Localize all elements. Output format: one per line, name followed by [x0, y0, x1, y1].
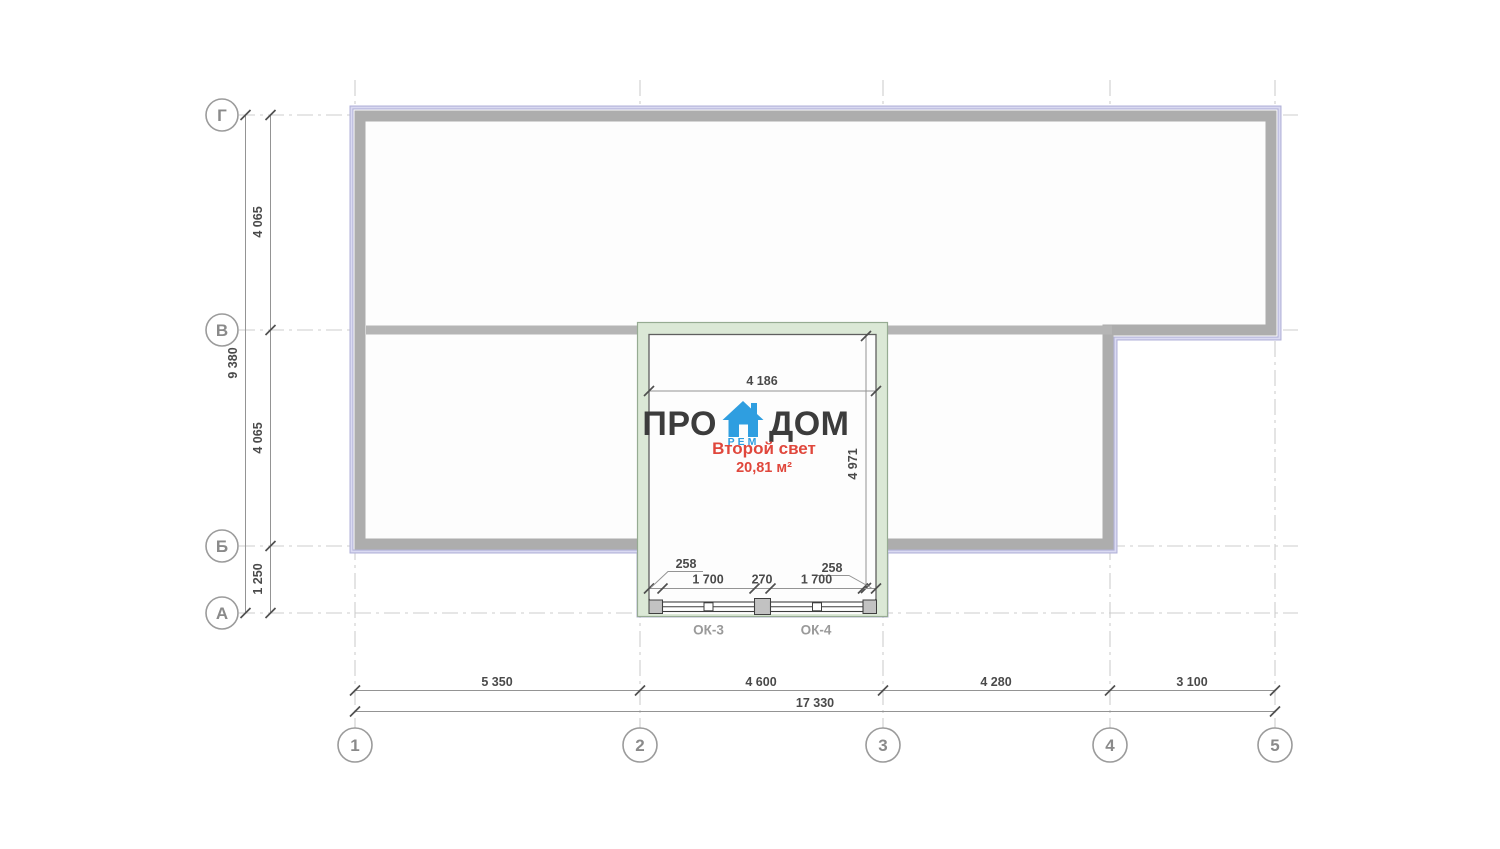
svg-text:1: 1: [350, 736, 359, 755]
dim-bottom-1: 4 600: [745, 675, 776, 689]
logo-word-pro: ПРО: [642, 405, 717, 443]
bottom-dimensions: 5 350 4 600 4 280 3 100 17 330: [350, 675, 1280, 717]
dim-left-total: 9 380: [226, 347, 240, 378]
dim-bottom-0: 5 350: [481, 675, 512, 689]
grid-bubble-col-1: 1: [338, 728, 372, 762]
room-area-label: 20,81 м²: [736, 460, 792, 476]
dim-bottom-2: 4 280: [980, 675, 1011, 689]
dim-bottom-total: 17 330: [796, 696, 834, 710]
grid-bubble-col-2: 2: [623, 728, 657, 762]
logo-word-dom: ДОМ: [769, 405, 850, 443]
grid-bubble-col-3: 3: [866, 728, 900, 762]
dim-window-2: 1 700: [801, 573, 832, 587]
grid-bubbles-cols: 1 2 3 4 5: [338, 728, 1292, 762]
grid-bubble-row-a: А: [206, 597, 238, 629]
svg-text:5: 5: [1270, 736, 1279, 755]
svg-text:2: 2: [635, 736, 644, 755]
window-label-ok3: ОК-3: [693, 623, 724, 638]
window-ok3-glyph: [663, 602, 755, 612]
window-jamb-left: [649, 600, 663, 614]
dim-room-height: 4 971: [846, 448, 860, 479]
grid-bubble-col-5: 5: [1258, 728, 1292, 762]
window-label-ok4: ОК-4: [801, 623, 832, 638]
dim-window-0: 1 700: [692, 573, 723, 587]
room-name-label: Второй свет: [712, 439, 816, 458]
dim-left-2: 1 250: [251, 563, 265, 594]
floor-plan-page: 4 065 4 065 1 250 9 380 5 350 4 600 4 28…: [0, 0, 1500, 849]
svg-text:3: 3: [878, 736, 887, 755]
window-pier: [755, 599, 771, 615]
svg-text:В: В: [216, 321, 228, 340]
svg-text:Б: Б: [216, 537, 228, 556]
grid-bubble-row-v: В: [206, 314, 238, 346]
dim-window-1: 270: [752, 573, 773, 587]
window-ok4-glyph: [771, 602, 864, 612]
svg-text:Г: Г: [217, 106, 227, 125]
window-jamb-right: [863, 600, 877, 614]
dim-room-width: 4 186: [746, 374, 777, 388]
dim-window-edge-left: 258: [676, 557, 697, 571]
svg-text:4: 4: [1105, 736, 1115, 755]
dim-left-1: 4 065: [251, 422, 265, 453]
dim-bottom-3: 3 100: [1176, 675, 1207, 689]
grid-bubble-row-g: Г: [206, 99, 238, 131]
grid-bubble-row-b: Б: [206, 530, 238, 562]
dim-left-0: 4 065: [251, 206, 265, 237]
floor-plan-canvas: 4 065 4 065 1 250 9 380 5 350 4 600 4 28…: [0, 0, 1500, 849]
grid-bubble-col-4: 4: [1093, 728, 1127, 762]
svg-text:А: А: [216, 604, 228, 623]
